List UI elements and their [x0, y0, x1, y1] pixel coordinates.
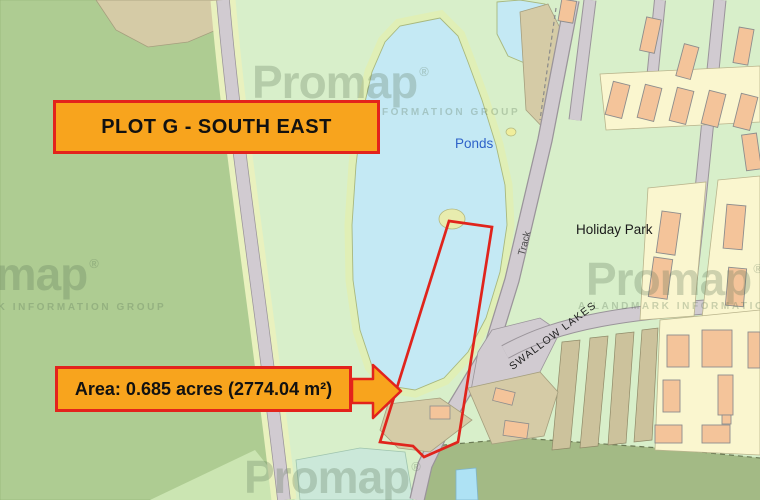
pond-small-south [456, 468, 478, 500]
plot-banner-label: PLOT G - SOUTH EAST [101, 116, 332, 139]
map-canvas [0, 0, 760, 500]
map-viewport[interactable]: Promap® A LANDMARK INFORMATION GROUP Pro… [0, 0, 760, 500]
area-callout: Area: 0.685 acres (2774.04 m²) [55, 366, 352, 412]
holiday-park-label: Holiday Park [576, 222, 653, 237]
ponds-label: Ponds [455, 136, 493, 151]
plot-banner: PLOT G - SOUTH EAST [53, 100, 380, 154]
area-callout-label: Area: 0.685 acres (2774.04 m²) [75, 379, 332, 400]
